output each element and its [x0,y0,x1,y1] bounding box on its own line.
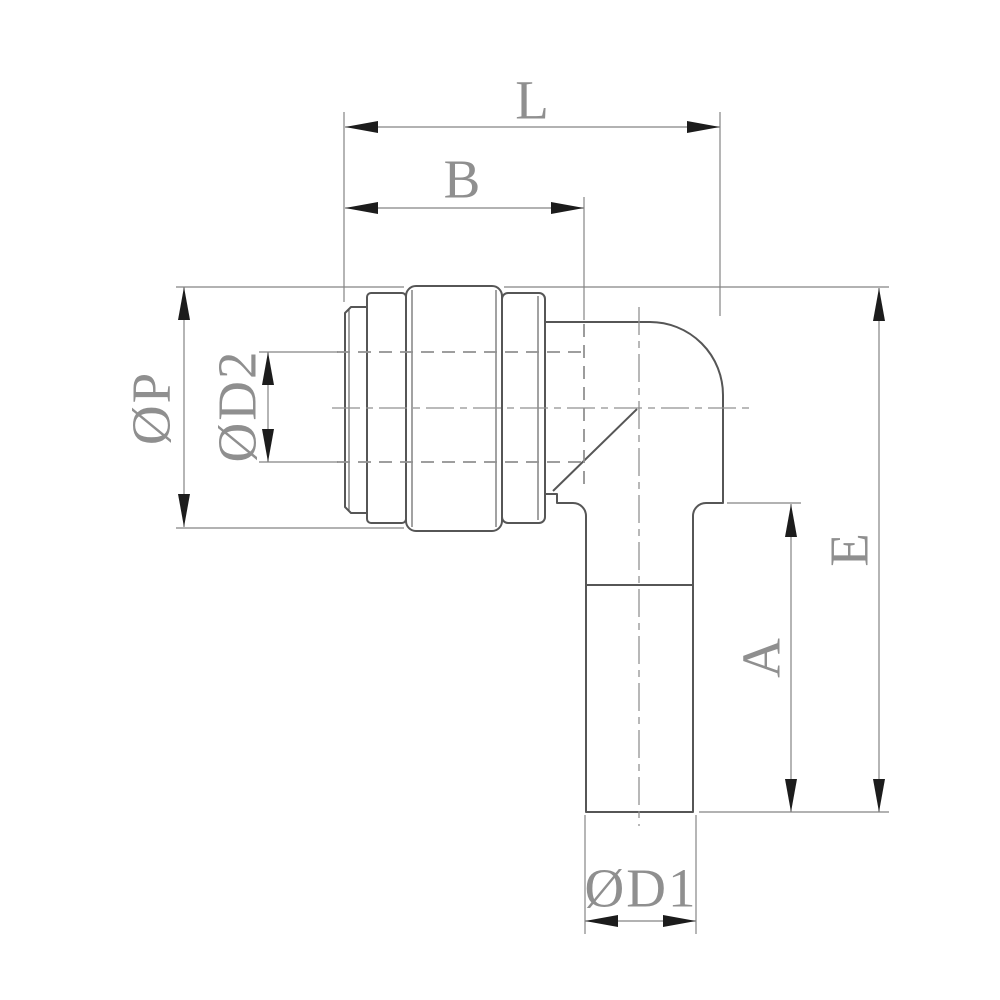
arrow-L-left [345,121,378,133]
technical-drawing-elbow-fitting: L B ØP ØD2 E A ØD1 [0,0,1000,1000]
dim-label-D2: ØD2 [210,350,265,463]
drawing-geometry [0,0,1000,1000]
arrow-A-top [785,504,797,537]
arrow-E-top [873,288,885,321]
arrow-E-bottom [873,779,885,812]
part-outline [345,286,723,812]
dim-label-P: ØP [124,371,179,445]
dim-label-D1: ØD1 [585,861,698,916]
collet-ring-outer [345,307,367,513]
arrow-B-right [551,202,584,214]
elbow-miter-line [553,409,637,491]
arrow-P-bottom [178,494,190,527]
dim-label-E: E [822,531,877,567]
hidden-lines [337,324,584,490]
dim-label-L: L [515,73,551,128]
arrow-B-left [345,202,378,214]
arrow-A-bottom [785,779,797,812]
centerlines [332,307,749,826]
dim-label-A: A [734,636,789,678]
arrow-L-right [687,121,720,133]
arrow-P-top [178,287,190,320]
elbow-body-outline [545,322,723,812]
dim-label-B: B [444,152,483,207]
